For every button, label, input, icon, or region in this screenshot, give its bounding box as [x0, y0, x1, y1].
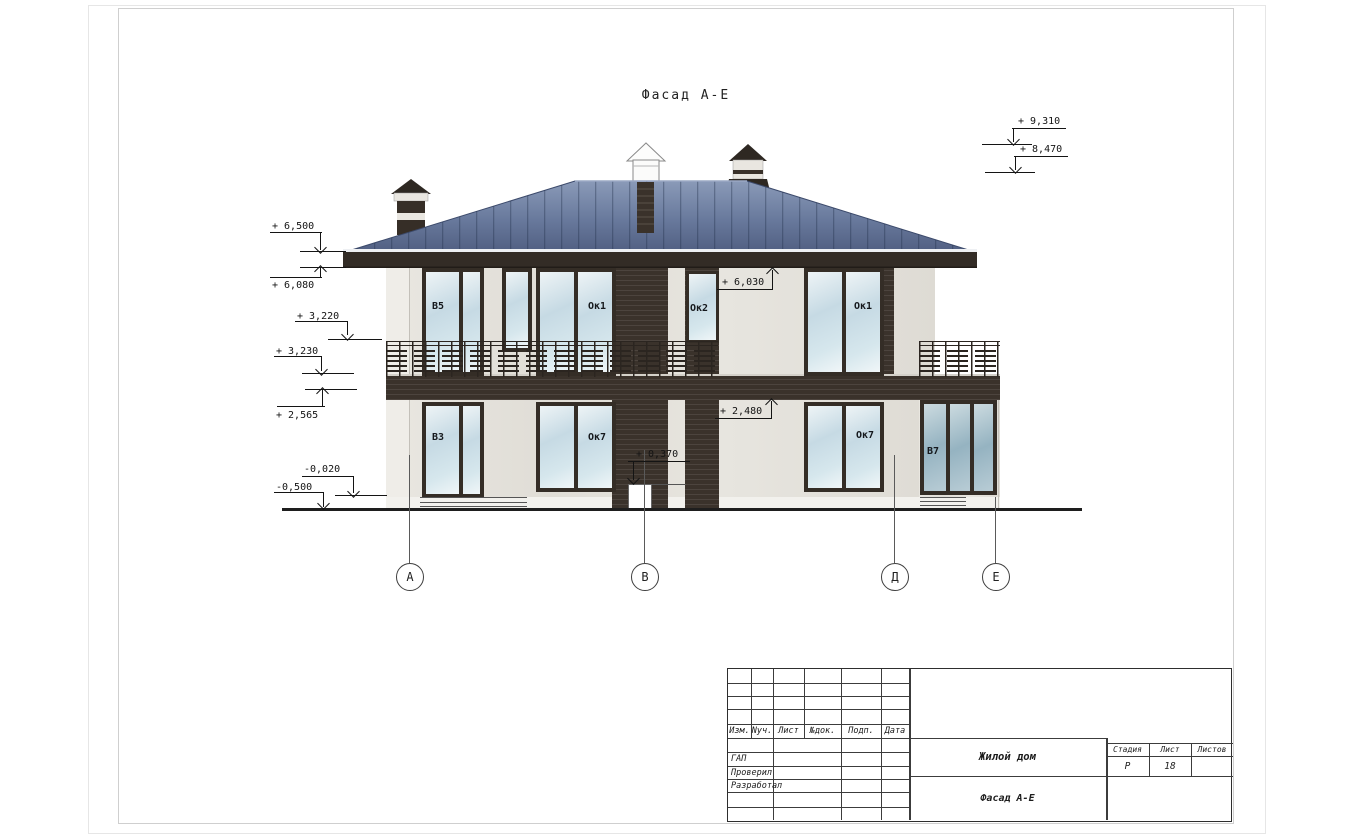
- elevation-value: -0,020: [304, 464, 340, 475]
- glass-pane: [808, 406, 842, 488]
- elevation-value: + 8,470: [1020, 144, 1062, 155]
- glass-pane: [950, 404, 969, 491]
- axis-line-e: [995, 497, 996, 563]
- window-b7: В7: [920, 400, 997, 495]
- axis-line-b: [644, 450, 645, 563]
- elevation-value: + 6,080: [272, 280, 314, 291]
- tb-col-podp: Подп.: [841, 724, 881, 738]
- axis-bubble-a: А: [396, 563, 424, 591]
- window-label: В5: [432, 301, 444, 312]
- tb-col-data: Дата: [881, 724, 909, 738]
- glass-pane: [808, 272, 842, 372]
- tb-col-izm: Изм.: [728, 724, 751, 738]
- tb-row-razrabotal: Разработал: [728, 779, 773, 792]
- axis-bubble-b: В: [631, 563, 659, 591]
- tb-row-gap: ГАП: [728, 752, 773, 766]
- window-label: В3: [432, 432, 444, 443]
- window-ok7-left: Ок7: [536, 402, 616, 492]
- tb-col-list: Лист: [773, 724, 804, 738]
- axis-bubble-e: Е: [982, 563, 1010, 591]
- window-label: Ок1: [854, 301, 872, 312]
- tb-stage-value: Р: [1106, 756, 1149, 776]
- axis-line-d: [894, 455, 895, 563]
- dark-cladding: [685, 400, 719, 510]
- tb-project-name: Жилой дом: [909, 738, 1106, 776]
- window-label: Ок7: [588, 432, 606, 443]
- title-block: Изм. Nуч. Лист №док. Подп. Дата ГАП Пров…: [727, 668, 1232, 822]
- glass-pane: [974, 404, 993, 491]
- window-b3: В3: [422, 402, 484, 498]
- tb-col-ndok: №док.: [804, 724, 841, 738]
- glass-pane: [426, 406, 459, 494]
- tb-sheets-value: [1191, 756, 1233, 776]
- axis-bubble-d: Д: [881, 563, 909, 591]
- window-label: В7: [927, 446, 939, 457]
- glass-pane: [578, 406, 612, 488]
- glass-pane: [846, 272, 880, 372]
- tb-sheet-value: 18: [1149, 756, 1191, 776]
- elevation-value: + 9,310: [1018, 116, 1060, 127]
- tb-stage-label: Стадия: [1106, 743, 1149, 756]
- interfloor-band: [386, 376, 1000, 400]
- tb-sheet-label: Лист: [1149, 743, 1191, 756]
- glass-pane: [506, 272, 528, 348]
- drawing-sheet: Фасад А-Е: [0, 0, 1350, 840]
- terrace-railing: [919, 341, 1000, 377]
- elevation-value: + 6,500: [272, 221, 314, 232]
- corner-pilaster: [386, 400, 409, 497]
- middle-chimney: [627, 143, 665, 183]
- ground-line: [282, 508, 1082, 511]
- tb-drawing-name: Фасад А-Е: [909, 776, 1106, 820]
- roof-stack: [637, 182, 654, 233]
- eaves-fascia: [343, 252, 977, 268]
- elevation-value: + 2,565: [276, 410, 318, 421]
- tb-col-nuch: Nуч.: [751, 724, 773, 738]
- window-label: Ок2: [690, 303, 708, 314]
- dimension-value: + 2,480: [720, 406, 762, 417]
- axis-line-a: [409, 455, 410, 563]
- glass-pane: [846, 406, 880, 488]
- window-fixed-pane: [502, 268, 532, 352]
- balcony-railing: [386, 341, 718, 377]
- window-ok1-right: Ок1: [804, 268, 884, 376]
- tb-row-proveril: Проверил: [728, 766, 773, 779]
- window-label: Ок1: [588, 301, 606, 312]
- glass-pane: [540, 406, 574, 488]
- window-label: Ок7: [856, 430, 874, 441]
- window-ok7-right: Ок7: [804, 402, 884, 492]
- window-ok2: Ок2: [686, 271, 719, 343]
- left-chimney: [391, 179, 431, 235]
- dimension-value: + 6,030: [722, 277, 764, 288]
- tb-sheets-label: Листов: [1191, 743, 1233, 756]
- dimension-value: + 0,370: [636, 449, 678, 460]
- glass-pane: [463, 406, 480, 494]
